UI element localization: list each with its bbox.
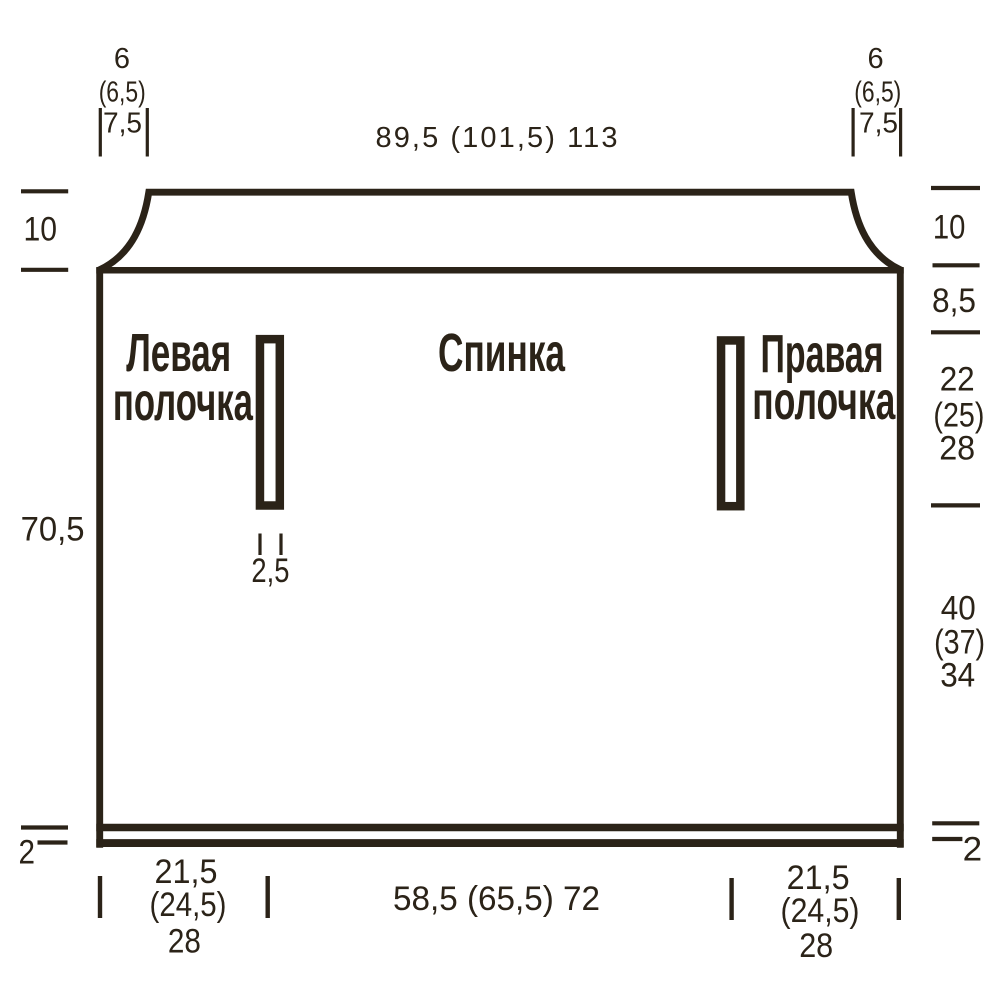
svg-text:(6,5): (6,5) (854, 76, 901, 108)
svg-text:28: 28 (799, 927, 833, 965)
svg-text:6: 6 (114, 43, 130, 75)
svg-text:10: 10 (24, 211, 58, 249)
svg-text:7,5: 7,5 (103, 108, 142, 140)
svg-text:28: 28 (939, 430, 975, 468)
svg-text:(24,5): (24,5) (781, 892, 860, 930)
svg-text:89,5 (101,5) 113: 89,5 (101,5) 113 (376, 122, 618, 154)
svg-text:58,5 (65,5) 72: 58,5 (65,5) 72 (393, 880, 600, 918)
svg-text:2: 2 (19, 834, 36, 872)
svg-text:полочка: полочка (113, 372, 254, 432)
svg-text:34: 34 (940, 656, 975, 694)
svg-text:6: 6 (868, 43, 884, 75)
svg-text:2: 2 (963, 831, 983, 869)
svg-text:70,5: 70,5 (21, 511, 85, 549)
svg-text:полочка: полочка (752, 371, 896, 431)
svg-text:28: 28 (168, 922, 201, 960)
svg-text:2,5: 2,5 (251, 552, 289, 590)
svg-text:(24,5): (24,5) (150, 886, 227, 924)
svg-text:8,5: 8,5 (932, 282, 976, 320)
svg-text:40: 40 (941, 590, 976, 628)
svg-text:22: 22 (940, 361, 975, 399)
svg-text:(6,5): (6,5) (99, 76, 146, 108)
svg-text:Спинка: Спинка (438, 323, 566, 383)
svg-text:10: 10 (933, 208, 966, 246)
svg-text:7,5: 7,5 (859, 108, 898, 140)
